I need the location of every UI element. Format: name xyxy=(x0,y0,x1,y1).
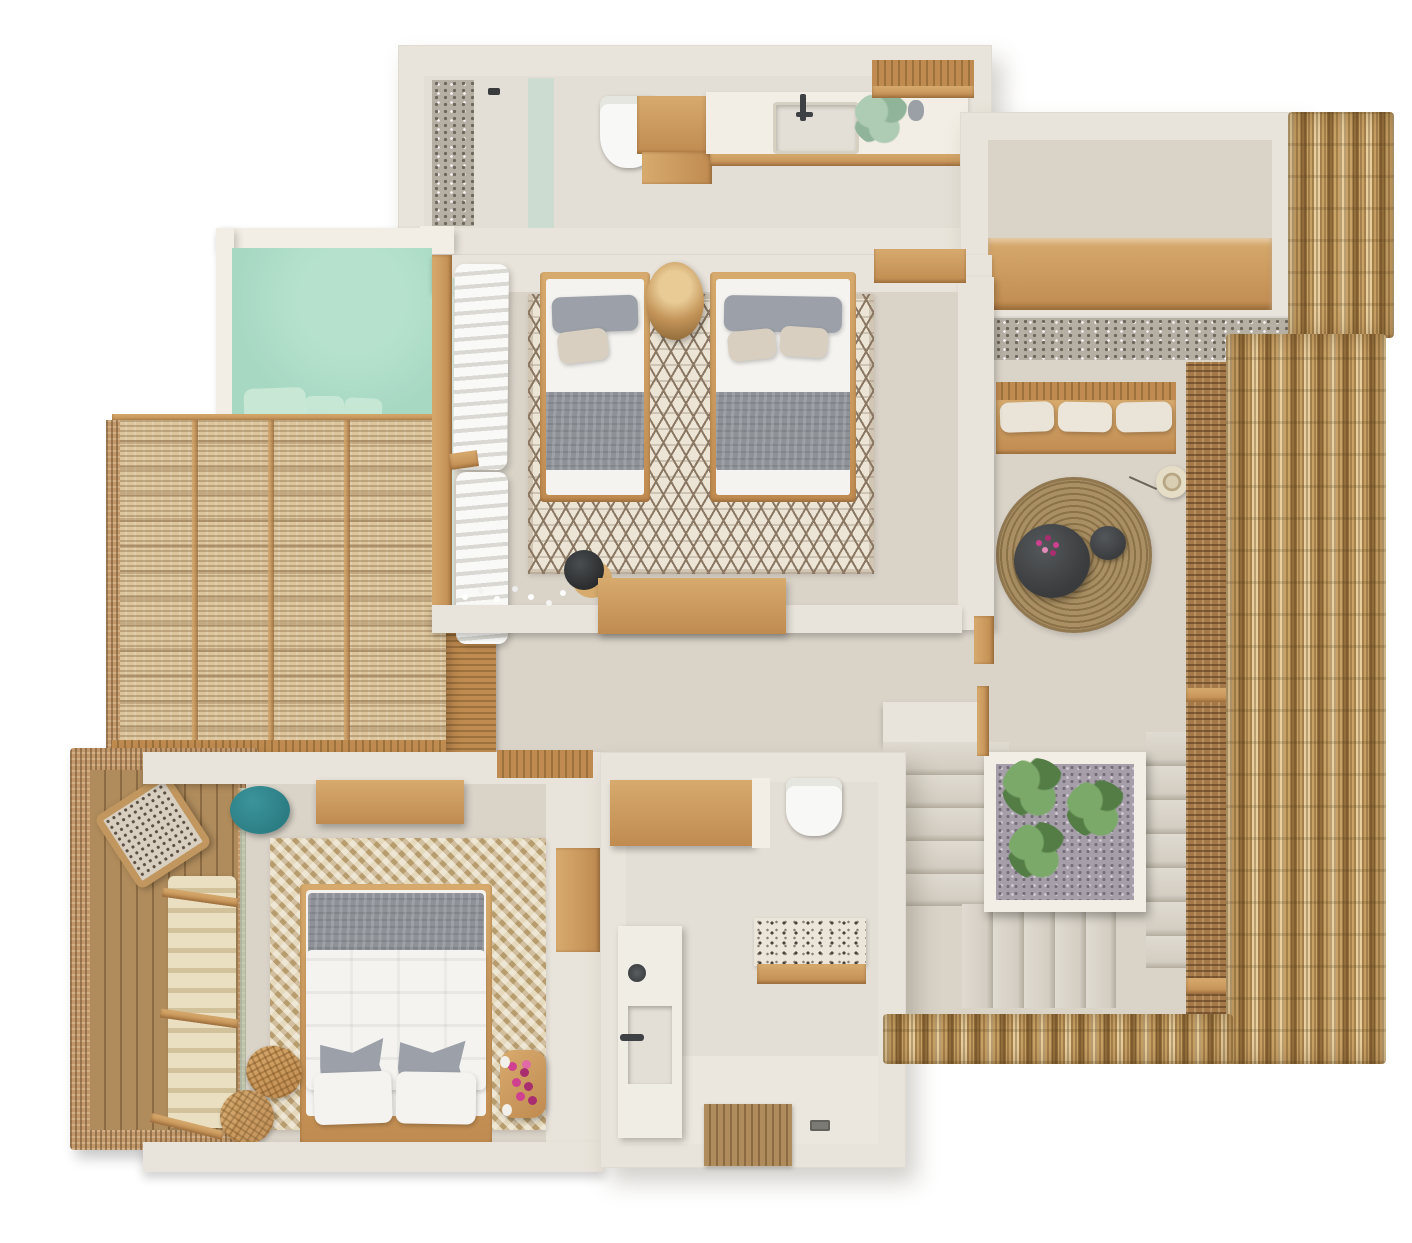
master-pillow-white xyxy=(313,1071,393,1126)
shower-handle xyxy=(620,1034,644,1041)
screen-wood-block xyxy=(1186,978,1230,994)
bench-cushion xyxy=(1116,402,1173,433)
pebble-accent-wall xyxy=(432,80,474,226)
planter-fern xyxy=(1066,780,1128,838)
sun-hat xyxy=(1156,466,1188,498)
stair-step xyxy=(1024,904,1055,1008)
stair-step xyxy=(993,904,1024,1008)
vanity-wood-apron xyxy=(757,964,866,984)
stair-step xyxy=(1055,904,1086,1008)
entry-wardrobe xyxy=(988,238,1272,310)
gray-vase xyxy=(908,100,924,121)
twin-bed-2-blanket xyxy=(716,392,850,474)
vanity-sink xyxy=(773,102,859,154)
floor-drain xyxy=(810,1120,830,1131)
pergola-divider xyxy=(192,420,198,752)
writing-desk xyxy=(598,578,786,634)
master-dresser xyxy=(316,780,464,824)
shower-head xyxy=(628,964,646,982)
bath-cabinet-lower xyxy=(642,152,712,184)
twin-bed-1-blanket xyxy=(546,392,644,474)
master-wall-bottom xyxy=(143,1142,605,1172)
twin-bed-1-foot-fold xyxy=(546,470,644,495)
coffee-table-black xyxy=(1014,524,1090,598)
stair-step xyxy=(1086,904,1116,1008)
bench-cushion xyxy=(999,401,1054,433)
master-pillow-white xyxy=(396,1071,477,1124)
counter-shelf-edge xyxy=(710,154,968,166)
bath-cabinet-upper xyxy=(637,96,713,154)
planter-fern xyxy=(1002,758,1066,818)
master-door-threshold xyxy=(497,750,593,778)
door-jamb-block xyxy=(974,616,994,664)
bench-rail xyxy=(872,86,974,98)
shower-niche xyxy=(628,1006,672,1084)
pergola-divider xyxy=(268,420,274,752)
stair-post xyxy=(977,686,989,756)
thatch-roof-bottom xyxy=(883,1014,1233,1064)
curtain-stack xyxy=(453,264,509,470)
twin-bed-2-pillow-beige xyxy=(779,325,829,358)
wood-slat-bench xyxy=(872,60,974,88)
floor-plan xyxy=(0,0,1412,1243)
shower-glass-panel xyxy=(528,78,554,228)
rattan-pendant-lamp xyxy=(646,262,704,340)
wall-stub xyxy=(752,778,770,848)
pool-wall-top xyxy=(216,228,454,250)
white-shell-decor xyxy=(500,1056,510,1068)
thatch-roof-top-right xyxy=(1288,112,1394,338)
screen-wood-block xyxy=(1186,688,1230,702)
potted-plant-bath xyxy=(853,92,911,146)
pergola-rattan-roof xyxy=(116,420,446,752)
white-flower-decor xyxy=(462,594,468,600)
twin-bed-2-pillow-beige xyxy=(727,328,778,363)
flower-sprig xyxy=(1036,540,1042,546)
deck-roller-shades xyxy=(168,876,236,1128)
teak-duckboard-mat xyxy=(704,1104,792,1166)
corridor-floor xyxy=(446,630,958,752)
teal-pouf xyxy=(230,786,290,834)
twin-room-door-frame xyxy=(432,255,452,633)
black-pouf xyxy=(1090,526,1126,560)
bench-backrest xyxy=(996,382,1176,400)
stair-step xyxy=(962,904,993,1008)
pergola-left-border xyxy=(106,420,120,752)
pergola-divider xyxy=(344,420,350,752)
corridor-slat-screen xyxy=(444,630,496,754)
twin-bed-2-foot-fold xyxy=(716,470,850,495)
toilet-master-bath xyxy=(786,778,842,836)
twin-bed-1-pillow-beige xyxy=(556,327,610,365)
twin-room-wall-right xyxy=(958,277,994,630)
ceiling-light xyxy=(488,88,500,95)
faucet-spout xyxy=(796,112,813,117)
master-wall-right xyxy=(545,752,605,1172)
thatch-roof-right xyxy=(1226,334,1386,1064)
stair-parapet xyxy=(883,702,981,742)
planter-fern xyxy=(1008,822,1068,880)
bath-storage-cabinet xyxy=(610,780,754,846)
luggage-bench xyxy=(874,249,966,283)
vanity-terrazzo-top xyxy=(754,918,866,966)
bench-cushion xyxy=(1058,402,1113,433)
master-wardrobe xyxy=(556,848,600,952)
